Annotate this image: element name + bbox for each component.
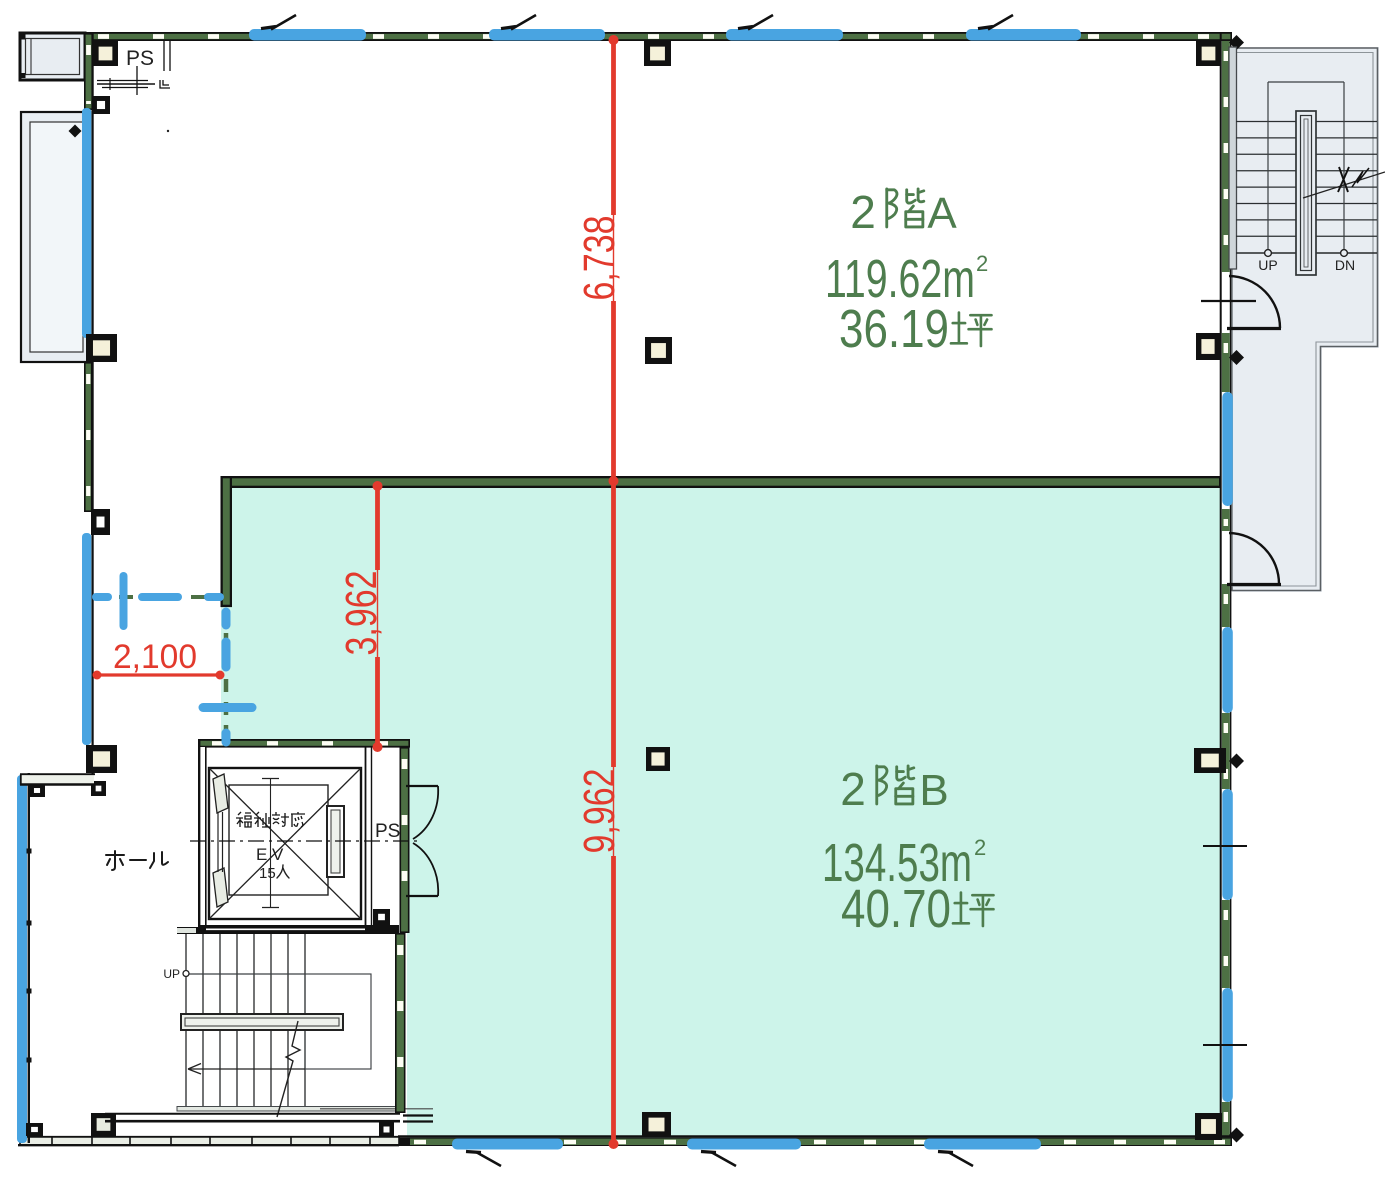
svg-text:36.19: 36.19 bbox=[839, 299, 949, 359]
svg-text:2: 2 bbox=[976, 251, 988, 276]
svg-text:2,100: 2,100 bbox=[113, 638, 197, 676]
svg-text:15: 15 bbox=[259, 865, 276, 882]
svg-text:2: 2 bbox=[974, 835, 986, 860]
svg-text:A: A bbox=[927, 189, 957, 238]
svg-text:2: 2 bbox=[840, 763, 866, 815]
svg-text:PS: PS bbox=[375, 821, 400, 842]
svg-text:40.70: 40.70 bbox=[841, 879, 951, 939]
svg-text:9,962: 9,962 bbox=[575, 769, 624, 854]
svg-text:UP: UP bbox=[1258, 257, 1277, 273]
svg-text:6,738: 6,738 bbox=[575, 216, 624, 301]
svg-text:DN: DN bbox=[1335, 257, 1355, 273]
svg-text:B: B bbox=[919, 766, 948, 815]
svg-text:V: V bbox=[272, 845, 284, 864]
svg-text:E: E bbox=[256, 845, 267, 864]
svg-text:UP: UP bbox=[163, 967, 180, 981]
svg-text:3,962: 3,962 bbox=[337, 571, 386, 656]
svg-text:2: 2 bbox=[850, 186, 876, 238]
svg-text:PS: PS bbox=[126, 47, 154, 70]
